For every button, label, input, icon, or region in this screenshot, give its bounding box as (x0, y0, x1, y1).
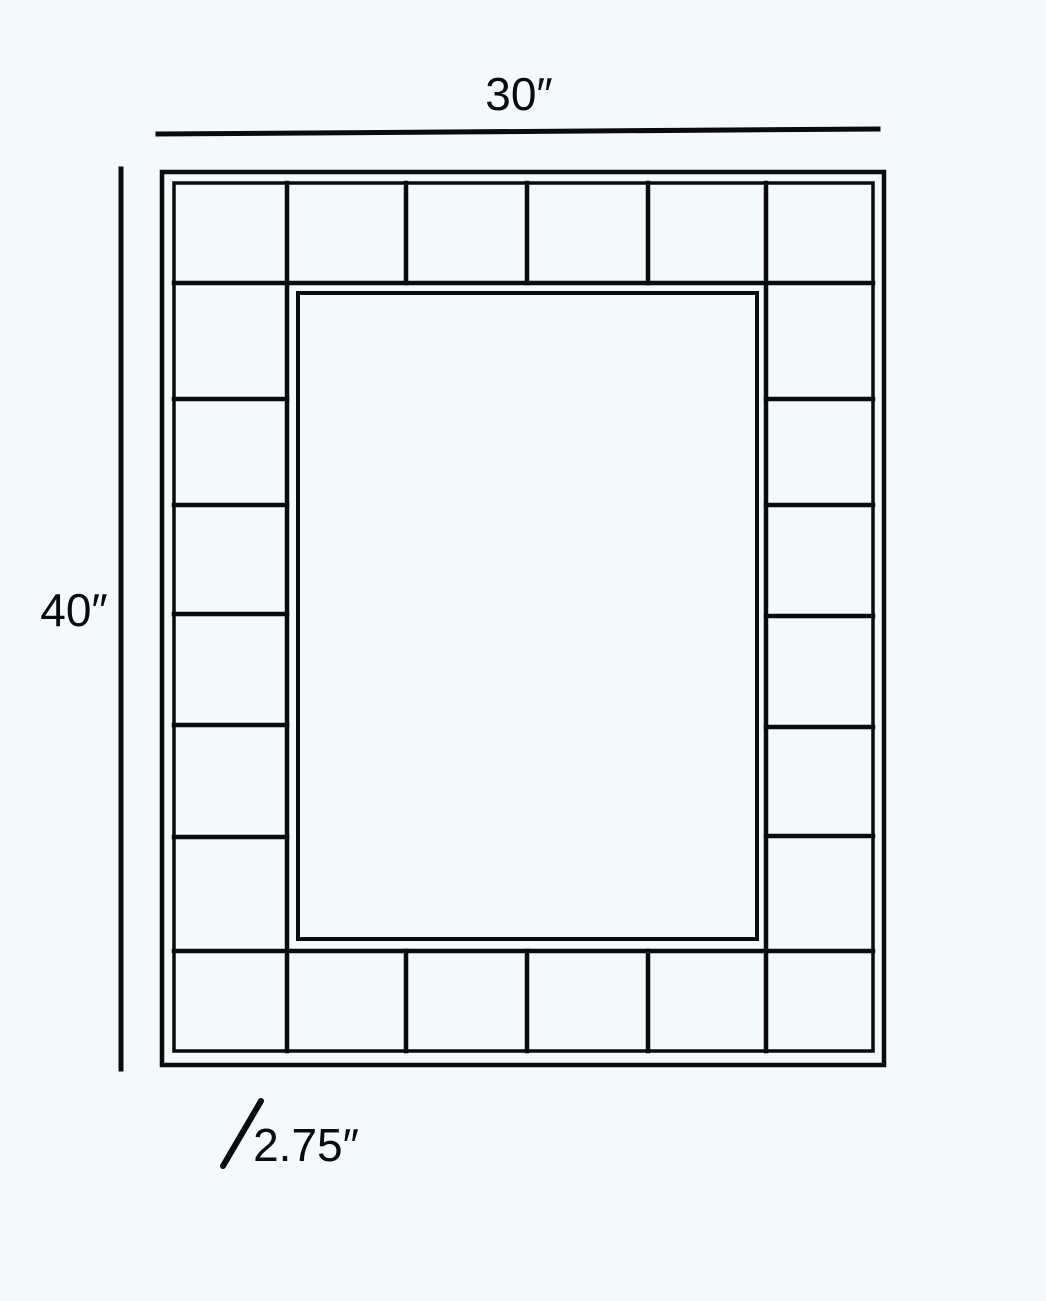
page-background (0, 0, 1046, 1301)
tile-dimension-label: 2.75″ (253, 1119, 359, 1171)
width-dimension-label: 30″ (485, 68, 552, 120)
height-dimension-label: 40″ (40, 584, 107, 636)
mirror-dimension-drawing: 30″ 40″ 2.75″ (0, 0, 1046, 1301)
diagram-canvas: 30″ 40″ 2.75″ (0, 0, 1046, 1301)
